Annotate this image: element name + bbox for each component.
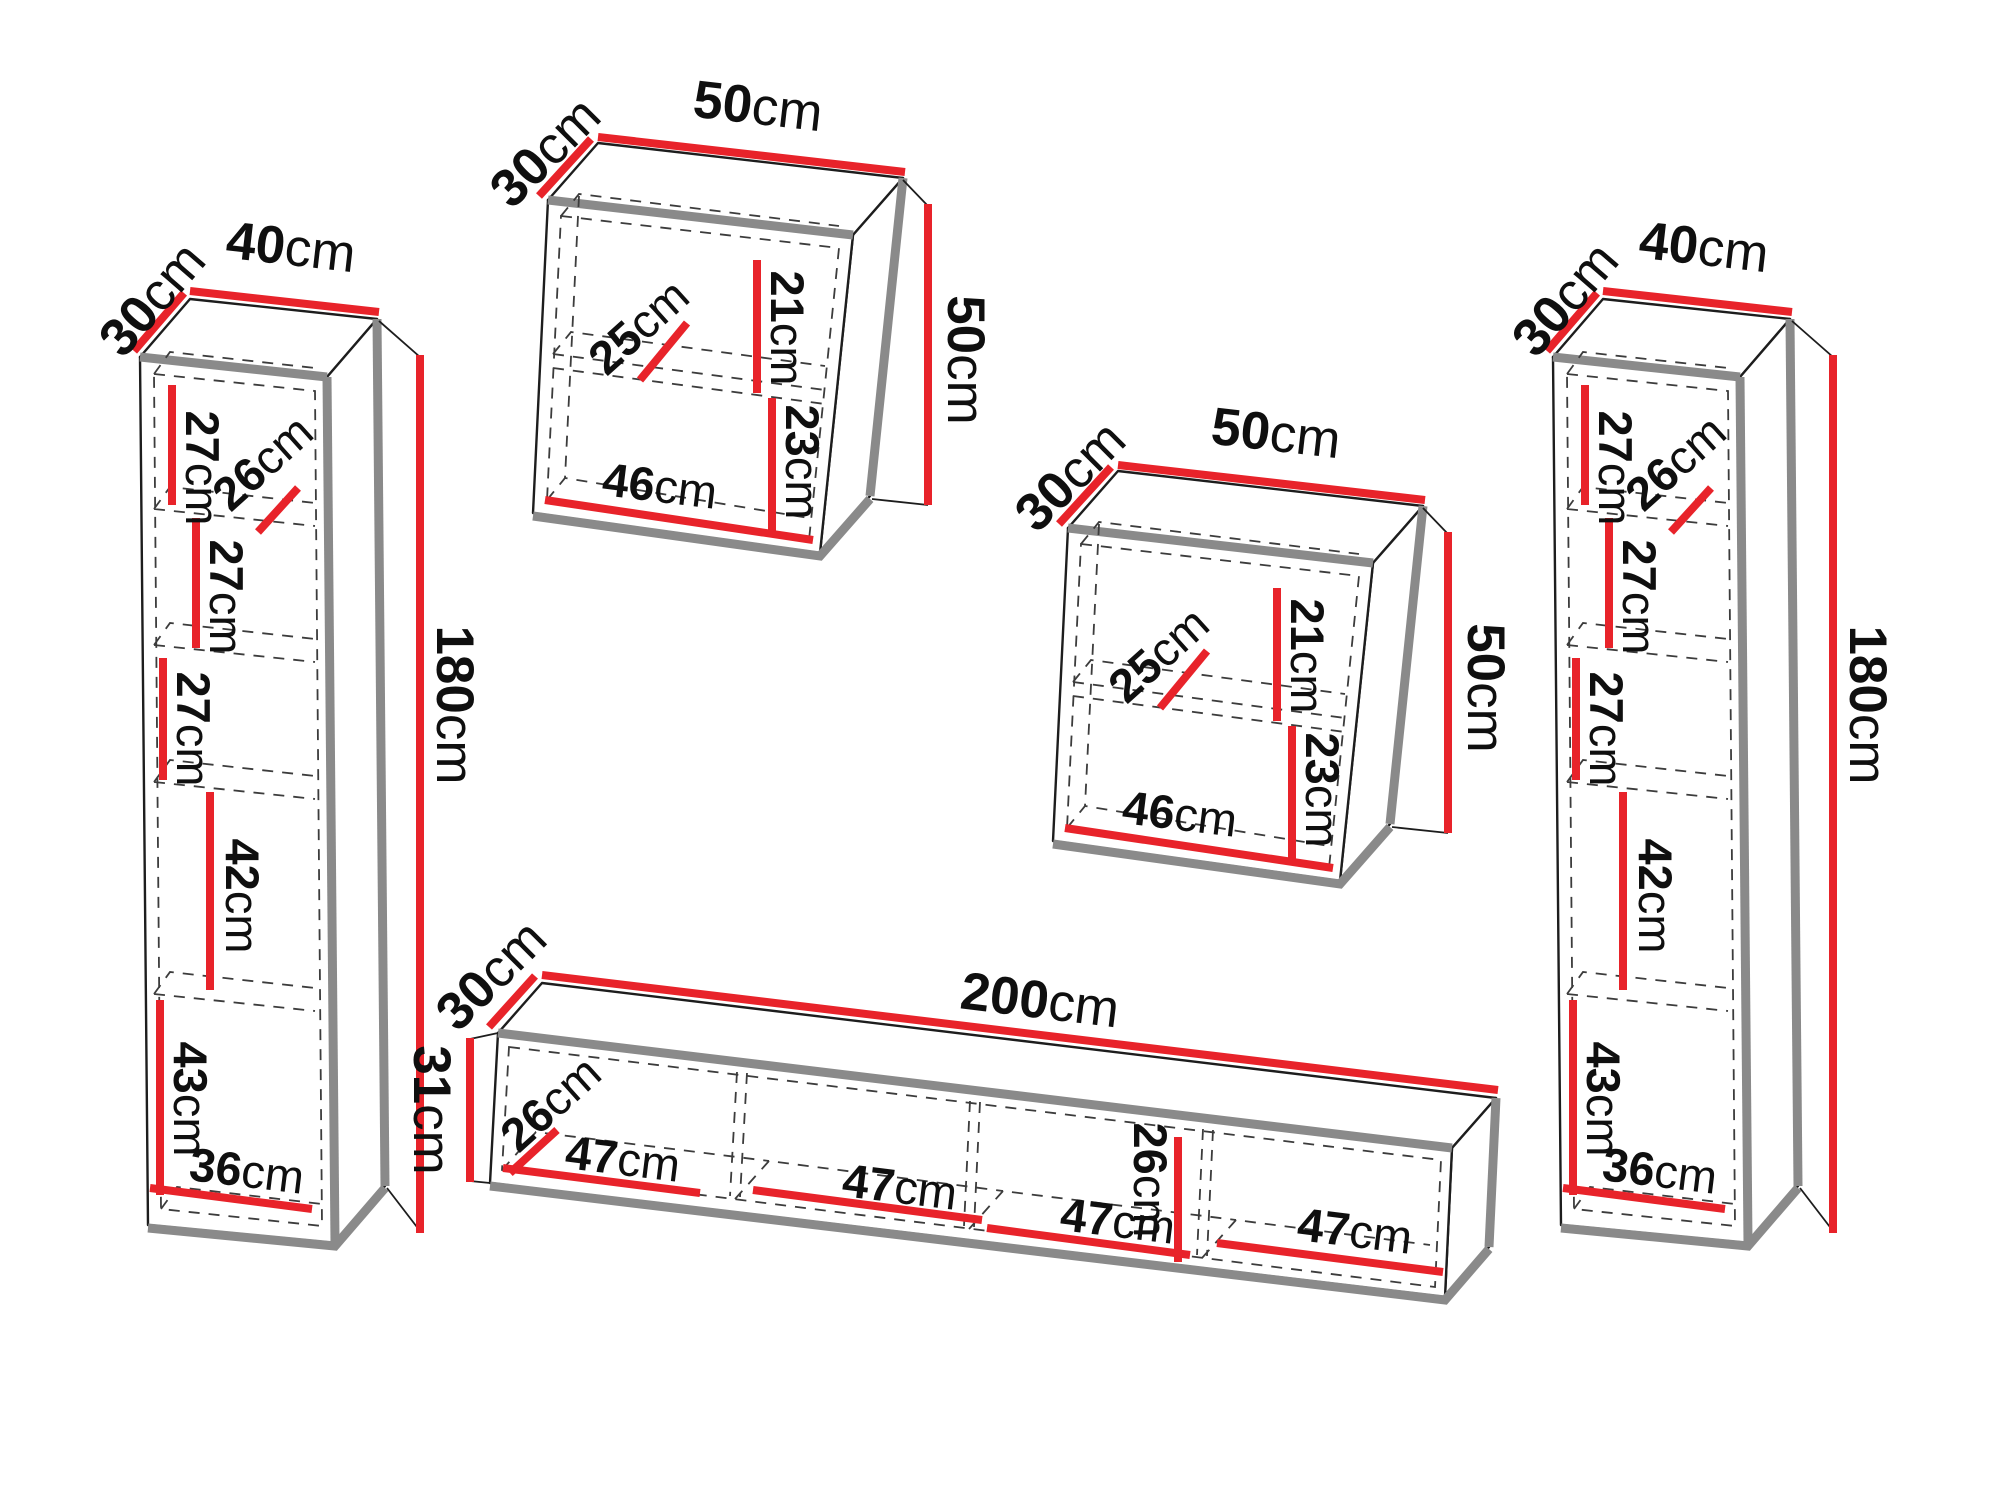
left-column-comp3-label: 27cm <box>168 672 221 787</box>
mid-wall-cabinet: 30cm 50cm 50cm 25cm 21cm 23cm 46cm <box>1003 396 1515 884</box>
tv-stand-inner-height-label: 26cm <box>1125 1123 1178 1238</box>
left-column-height-label: 180cm <box>426 625 485 784</box>
top-cabinet-upper-label: 21cm <box>762 271 815 386</box>
mid-cabinet-lower-label: 23cm <box>1297 733 1350 848</box>
right-column-comp4-label: 42cm <box>1630 839 1683 954</box>
mid-cabinet-height-label: 50cm <box>1457 623 1516 753</box>
top-cabinet-lower-label: 23cm <box>777 405 830 520</box>
right-column-height-label: 180cm <box>1839 625 1898 784</box>
top-cabinet-height-label: 50cm <box>937 295 996 425</box>
right-column-comp3-label: 27cm <box>1581 672 1634 787</box>
mid-cabinet-upper-label: 21cm <box>1282 599 1335 714</box>
left-column-comp2-label: 27cm <box>201 540 254 655</box>
mid-cabinet-width-label: 50cm <box>1208 396 1343 469</box>
top-cabinet-width-label: 50cm <box>690 69 825 142</box>
tv-stand-height-label: 31cm <box>403 1045 462 1175</box>
left-column-comp4-label: 42cm <box>217 839 270 954</box>
left-column-width-label: 40cm <box>223 210 358 283</box>
tv-stand: 30cm 200cm 31cm 26cm 47cm 47cm 47cm 26cm… <box>403 908 1499 1300</box>
top-wall-cabinet: 30cm 50cm 50cm 25cm 21cm 23cm 46cm <box>478 69 995 556</box>
diagram-page: 40cm 30cm 180cm 27cm 26cm 27cm 27cm 42cm… <box>0 0 2000 1500</box>
wall-unit-dimensions-diagram: 40cm 30cm 180cm 27cm 26cm 27cm 27cm 42cm… <box>0 0 2000 1500</box>
right-column-width-label: 40cm <box>1636 210 1771 283</box>
right-column-comp2-label: 27cm <box>1614 540 1667 655</box>
right-column-cabinet: 40cm 30cm 180cm 27cm 26cm 27cm 27cm 42cm… <box>1500 210 1897 1246</box>
